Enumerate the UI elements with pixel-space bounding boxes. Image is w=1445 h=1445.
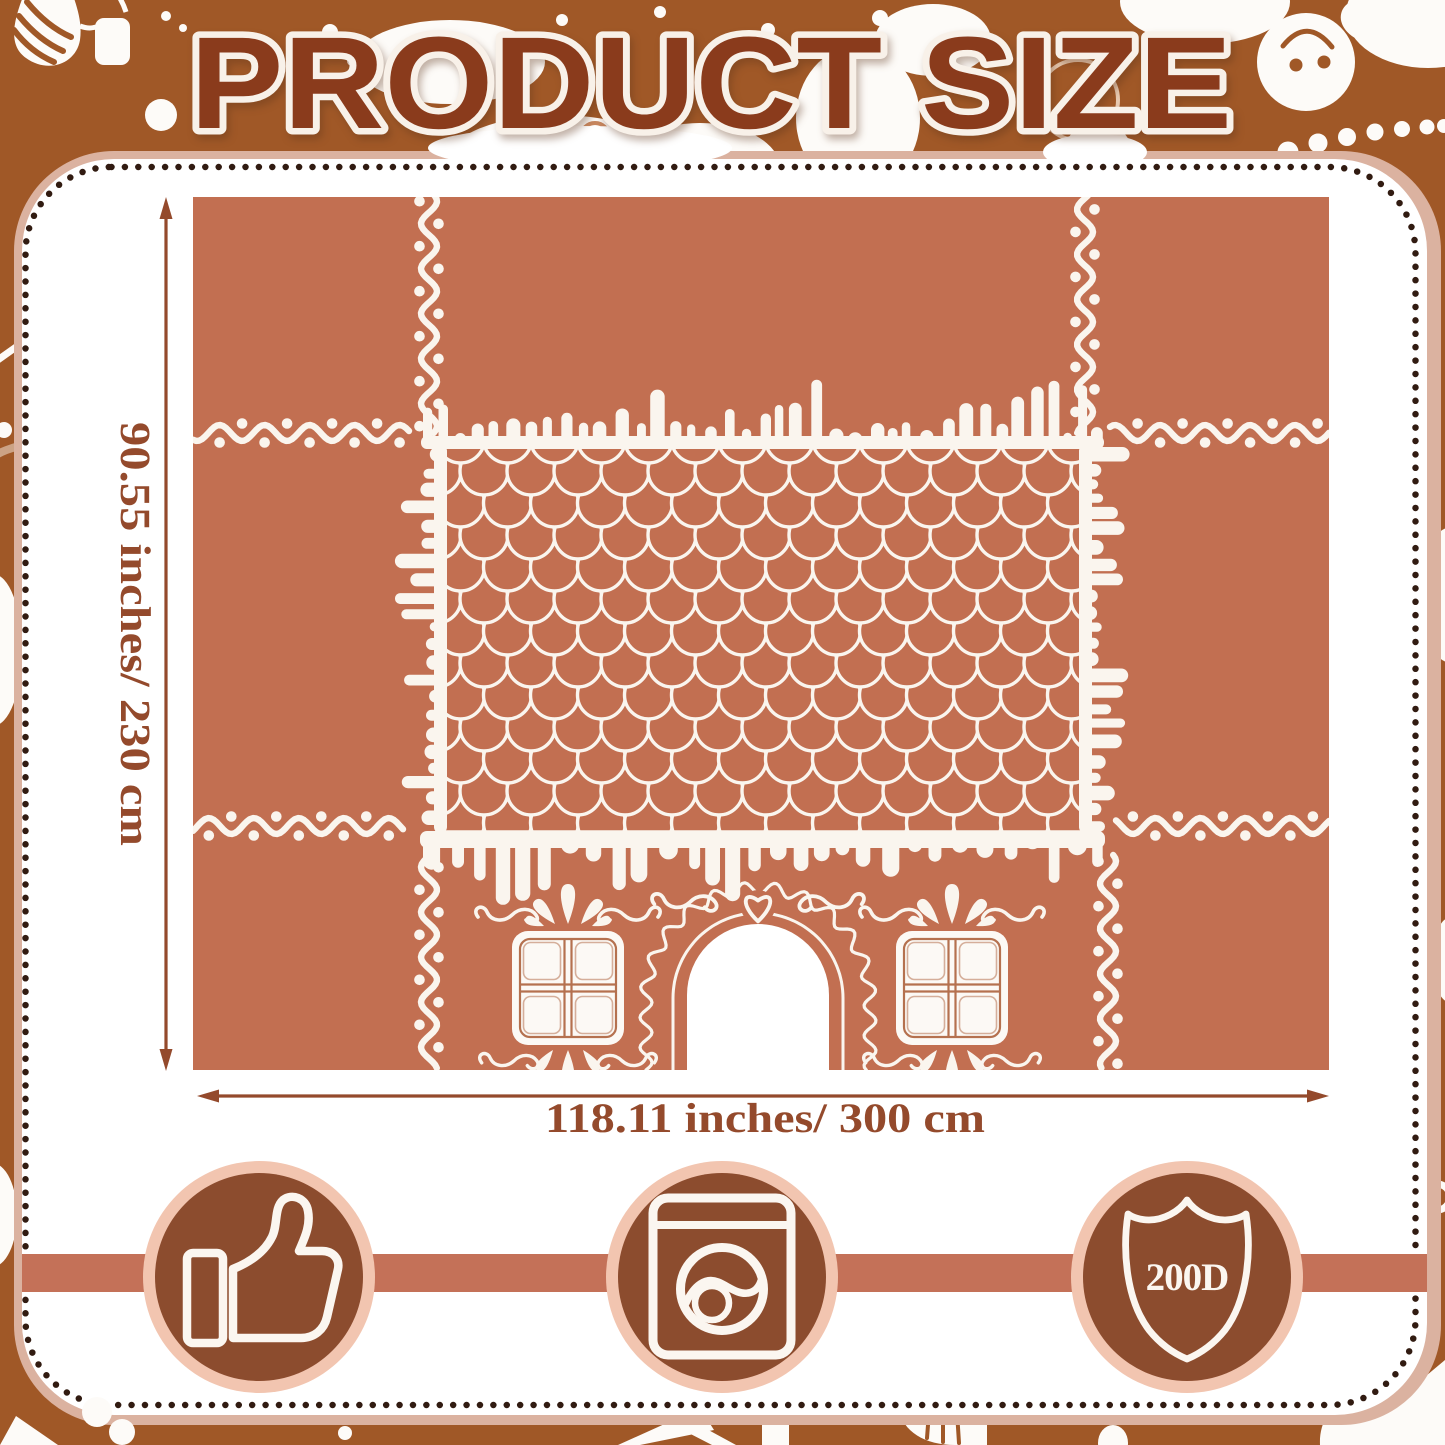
svg-text:200D: 200D (1146, 1256, 1229, 1299)
svg-text:90.55 inches/ 230 cm: 90.55 inches/ 230 cm (111, 422, 158, 846)
svg-text:PRODUCT SIZE: PRODUCT SIZE (190, 9, 1232, 156)
svg-text:118.11 inches/ 300 cm: 118.11 inches/ 300 cm (545, 1096, 985, 1142)
